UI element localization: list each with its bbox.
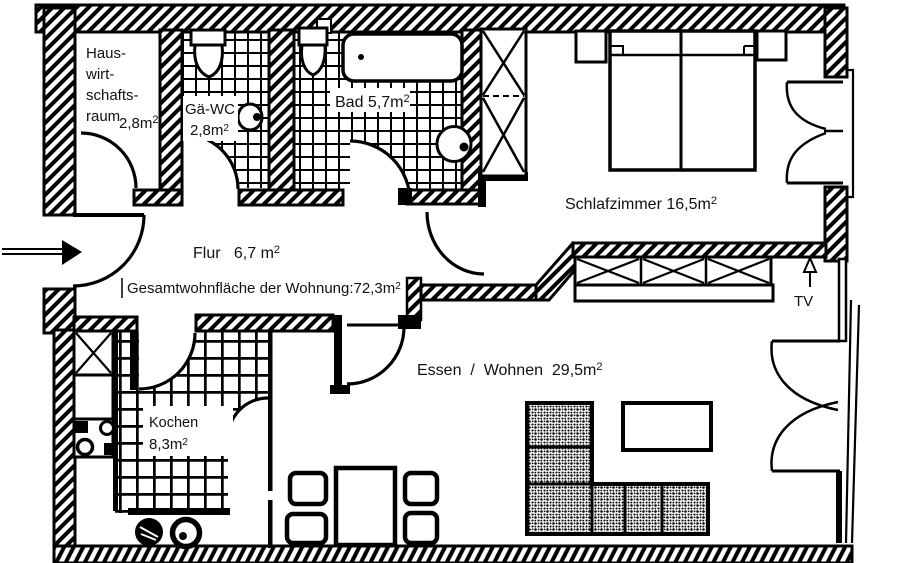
svg-text:Haus-: Haus- (86, 45, 126, 62)
svg-text:wirt-: wirt- (85, 66, 114, 83)
svg-text:schafts-: schafts- (86, 87, 139, 104)
svg-text:Schlafzimmer 16,5m2: Schlafzimmer 16,5m2 (565, 195, 717, 213)
svg-text:Gä-WC: Gä-WC (185, 101, 235, 118)
svg-text:TV: TV (794, 293, 813, 310)
svg-text:Gesamtwohnfläche der Wohnung:7: Gesamtwohnfläche der Wohnung:72,3m2 (127, 280, 401, 297)
svg-text:Kochen: Kochen (149, 415, 198, 431)
svg-text:Flur 6,7 m2: Flur 6,7 m2 (193, 244, 280, 262)
svg-text:Bad 5,7m2: Bad 5,7m2 (335, 93, 410, 111)
svg-text:Essen / Wohnen 29,5m2: Essen / Wohnen 29,5m2 (417, 361, 602, 379)
svg-text:raum: raum (86, 108, 120, 125)
